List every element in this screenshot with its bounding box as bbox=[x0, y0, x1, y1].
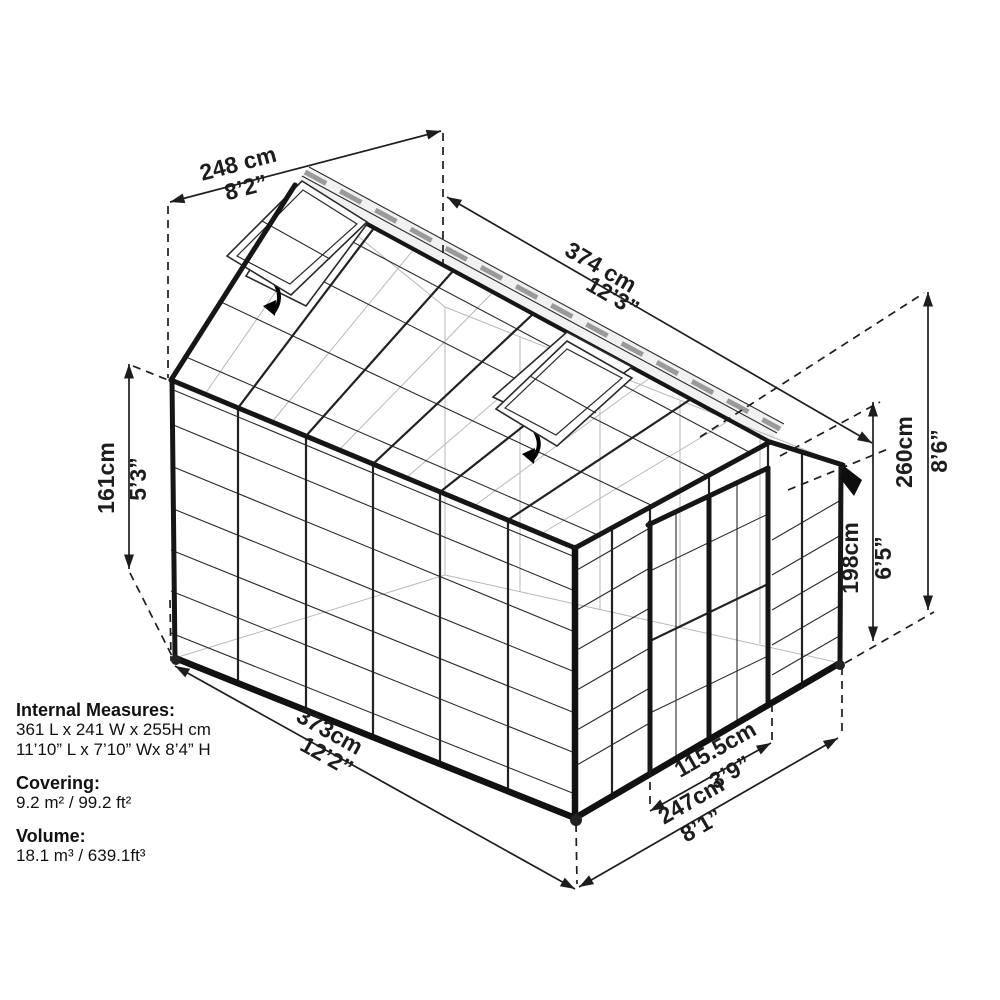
dim-wall-height-ft: 5’3” bbox=[125, 457, 151, 500]
volume-value: 18.1 m³ / 639.1ft³ bbox=[16, 846, 211, 866]
dim-door-height-ft: 6’5” bbox=[870, 536, 896, 579]
covering-value: 9.2 m² / 99.2 ft² bbox=[16, 793, 211, 813]
dim-wall-height-cm: 161cm bbox=[93, 442, 119, 514]
dim-total-height-cm: 260cm bbox=[891, 416, 917, 488]
greenhouse-drawing bbox=[171, 167, 862, 826]
covering-label: Covering: bbox=[16, 773, 211, 793]
spec-block: Internal Measures: 361 L x 241 W x 255H … bbox=[16, 700, 211, 866]
dim-wall-height: 161cm 5’3” bbox=[93, 364, 172, 656]
dim-total-height-ft: 8’6” bbox=[926, 429, 952, 472]
greenhouse-dimension-diagram: 248 cm 8’2” 374 cm 12’3” 161cm 5’3” 260c… bbox=[0, 0, 1000, 1000]
dim-door-height-cm: 198cm bbox=[837, 522, 863, 594]
internal-measures-label: Internal Measures: bbox=[16, 700, 211, 720]
internal-measures-imperial: 11’10” L x 7’10” Wx 8’4” H bbox=[16, 740, 211, 760]
internal-measures-metric: 361 L x 241 W x 255H cm bbox=[16, 720, 211, 740]
volume-label: Volume: bbox=[16, 826, 211, 846]
